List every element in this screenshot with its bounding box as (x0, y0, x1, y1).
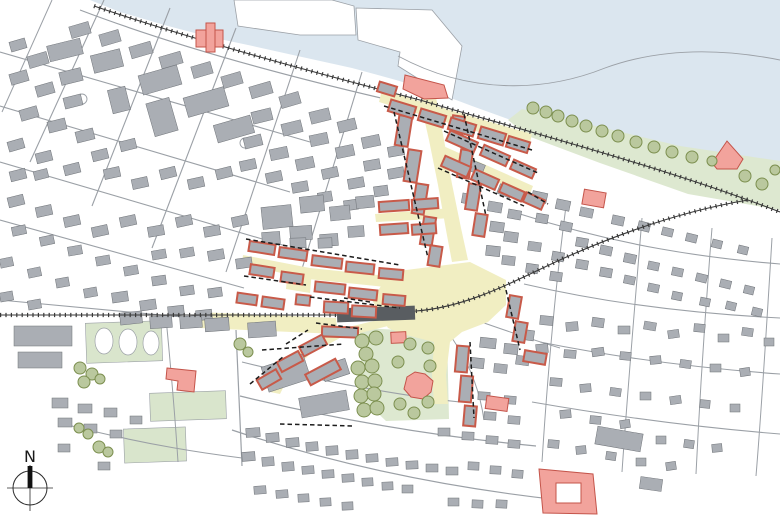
building (205, 317, 230, 332)
building (504, 343, 519, 354)
running-track (119, 329, 137, 355)
building (18, 352, 62, 368)
frontage-building (383, 294, 406, 306)
building (665, 461, 676, 470)
building (508, 440, 521, 449)
tree (666, 146, 678, 158)
building (623, 275, 635, 285)
frontage-building (324, 301, 349, 313)
tree (422, 342, 434, 354)
building (599, 245, 613, 256)
building (661, 227, 674, 237)
building (366, 454, 378, 463)
tree (648, 141, 660, 153)
building (560, 410, 572, 419)
frontage-building (352, 305, 377, 317)
building (242, 452, 256, 462)
frontage-building (455, 346, 469, 373)
building (502, 255, 516, 265)
building (679, 359, 691, 368)
building (0, 257, 14, 269)
building (150, 315, 173, 329)
north-needle (28, 466, 33, 488)
road (542, 206, 566, 462)
town-map-canvas: N (0, 0, 780, 516)
building (406, 461, 418, 469)
building (282, 462, 295, 472)
road (756, 238, 772, 476)
building (725, 301, 737, 311)
building (9, 70, 29, 86)
tree (580, 120, 592, 132)
frontage-building (480, 145, 510, 166)
building (737, 245, 749, 255)
building (9, 168, 27, 182)
building (550, 377, 563, 386)
building (591, 317, 604, 328)
building (699, 297, 710, 307)
building (387, 167, 404, 180)
building (564, 349, 577, 358)
building (671, 267, 683, 277)
frontage-building (315, 281, 346, 294)
building (751, 307, 763, 317)
building (487, 201, 503, 213)
building (342, 474, 354, 483)
building (249, 81, 273, 99)
building (47, 118, 67, 133)
north-label: N (24, 447, 36, 466)
tree (354, 389, 368, 403)
building (580, 384, 592, 393)
tree (365, 359, 379, 373)
building (318, 238, 332, 248)
building (643, 321, 656, 331)
tree (355, 334, 369, 348)
frontage-building (379, 200, 410, 212)
building (180, 315, 203, 329)
building (63, 214, 81, 227)
tree (103, 447, 113, 457)
building (489, 221, 504, 233)
landmark-courtyard (556, 483, 581, 503)
building (640, 392, 651, 400)
building (231, 214, 249, 227)
building (261, 204, 293, 229)
frontage-building (305, 359, 341, 386)
frontage-building (379, 268, 404, 280)
building (611, 215, 625, 226)
building (590, 416, 602, 425)
building (35, 82, 55, 98)
building (321, 166, 339, 179)
building (35, 204, 53, 217)
building (91, 224, 109, 237)
building (592, 347, 605, 357)
building (248, 321, 277, 338)
building (685, 233, 698, 243)
tree (74, 423, 84, 433)
building (599, 267, 612, 278)
building (719, 279, 732, 289)
building (764, 338, 774, 346)
building (486, 436, 498, 445)
building (694, 324, 706, 333)
building (75, 128, 95, 143)
building (540, 315, 554, 325)
building (656, 436, 666, 444)
building (710, 364, 721, 372)
building (362, 478, 373, 487)
building (730, 404, 740, 412)
building (251, 108, 273, 124)
tree (357, 403, 371, 417)
building (382, 482, 393, 490)
sports-field (150, 391, 227, 422)
tree (74, 362, 86, 374)
building (286, 438, 300, 448)
building (605, 451, 616, 460)
building (342, 502, 353, 510)
building (355, 195, 374, 209)
building (609, 387, 621, 396)
building (402, 485, 413, 493)
frontage-building (312, 255, 343, 269)
tree (95, 374, 105, 384)
frontage-building (296, 294, 311, 305)
building (507, 209, 521, 220)
building (11, 225, 27, 237)
building (58, 418, 72, 427)
building (363, 159, 380, 172)
building (695, 273, 708, 283)
frontage-building (512, 321, 527, 343)
building (298, 494, 309, 503)
frontage-building (395, 115, 413, 147)
tree (404, 338, 416, 350)
tree (686, 151, 698, 163)
frontage-building (377, 82, 397, 97)
building (279, 91, 302, 108)
building (27, 267, 42, 279)
tree (552, 110, 564, 122)
building (103, 166, 121, 179)
building (265, 170, 283, 183)
building (138, 65, 182, 95)
building (739, 367, 750, 376)
building (39, 235, 55, 247)
building (83, 287, 97, 298)
building (266, 433, 280, 443)
building (438, 428, 450, 436)
building (159, 166, 177, 180)
frontage-building (459, 376, 473, 403)
road (696, 228, 712, 474)
building (107, 86, 130, 114)
north-arrow: N (7, 447, 53, 511)
building (129, 41, 153, 59)
building (329, 205, 350, 221)
frontage-building (236, 293, 257, 306)
building (239, 158, 257, 171)
building (269, 146, 289, 161)
landmark-building (582, 189, 606, 208)
building (559, 221, 573, 232)
building (486, 245, 501, 256)
tree (422, 396, 434, 408)
building (58, 444, 70, 452)
tree (355, 375, 369, 389)
building (575, 259, 588, 270)
site-plan-map: N (0, 0, 780, 516)
building (55, 277, 69, 288)
building (147, 225, 164, 238)
tree (566, 115, 578, 127)
building (512, 470, 524, 479)
building (183, 87, 229, 118)
building (361, 134, 381, 149)
building (299, 390, 350, 418)
building (35, 150, 53, 164)
building (337, 118, 357, 133)
building (78, 404, 92, 413)
building (63, 162, 81, 176)
building (700, 400, 711, 409)
building (52, 398, 68, 408)
building (98, 462, 110, 470)
building (215, 166, 233, 180)
building (595, 426, 643, 452)
building (207, 249, 224, 262)
building (426, 464, 438, 472)
building (151, 275, 166, 286)
building (246, 428, 261, 438)
building (472, 500, 483, 508)
frontage-building (428, 245, 443, 267)
tree (78, 376, 90, 388)
building (99, 29, 122, 46)
building (131, 176, 149, 189)
building (322, 470, 334, 479)
landmark-building (206, 23, 215, 52)
building (63, 94, 83, 109)
building (179, 285, 194, 296)
building (639, 477, 662, 492)
tree (392, 356, 404, 368)
building (27, 299, 41, 310)
building (90, 49, 123, 74)
building (647, 283, 659, 293)
building (335, 144, 355, 159)
building (0, 291, 14, 302)
building (146, 97, 178, 136)
building (95, 255, 110, 266)
frontage-building (523, 350, 547, 365)
building (130, 416, 142, 424)
building (276, 490, 289, 499)
tree (351, 361, 365, 375)
building (139, 299, 156, 311)
building (386, 458, 398, 467)
building (373, 185, 388, 197)
tree (540, 106, 552, 118)
building (119, 138, 137, 152)
building (262, 457, 275, 467)
building (347, 177, 364, 190)
tree (596, 125, 608, 137)
building (619, 419, 630, 428)
frontage-building (346, 262, 375, 275)
tree (756, 178, 768, 190)
building (535, 213, 548, 224)
frontage-building (349, 288, 378, 301)
frontage-building (463, 406, 477, 427)
running-track (95, 328, 113, 354)
building (484, 412, 496, 421)
frontage-building (465, 183, 481, 211)
building (9, 38, 27, 52)
building (636, 458, 646, 466)
building (669, 395, 681, 404)
building (203, 225, 220, 238)
building (110, 430, 122, 438)
frontage-building (380, 223, 409, 235)
building (566, 321, 579, 331)
building (309, 108, 331, 124)
building (19, 106, 39, 122)
building (33, 168, 49, 180)
building (123, 265, 138, 276)
building (508, 416, 521, 425)
building (159, 51, 183, 69)
frontage-building (261, 297, 284, 310)
building (671, 291, 682, 301)
building (718, 334, 729, 342)
building (309, 132, 329, 147)
tree (408, 407, 420, 419)
landmark-building (391, 332, 407, 344)
building (346, 450, 358, 460)
building (462, 432, 474, 440)
tree (370, 401, 384, 415)
block-frontage-dashed (280, 424, 354, 426)
building (494, 363, 508, 373)
tree (367, 387, 381, 401)
building (67, 245, 82, 256)
building (348, 225, 365, 237)
building (623, 253, 637, 264)
building (549, 271, 562, 282)
building (119, 214, 137, 227)
building (712, 444, 723, 453)
tree (243, 347, 253, 357)
building (496, 500, 507, 509)
building (741, 327, 753, 336)
building (647, 261, 659, 271)
building (683, 439, 694, 448)
tree (424, 360, 436, 372)
building (299, 195, 325, 213)
road (532, 402, 780, 434)
building (27, 51, 50, 68)
frontage-building (472, 213, 487, 237)
building (295, 156, 315, 171)
tree (707, 156, 717, 166)
tree (630, 136, 642, 148)
building (91, 148, 109, 162)
tree (770, 165, 780, 175)
building (221, 71, 244, 88)
building (650, 356, 662, 365)
tree (739, 170, 751, 182)
building (480, 337, 497, 349)
frontage-building (322, 326, 358, 337)
building (191, 61, 214, 78)
building (576, 446, 587, 455)
building (326, 446, 338, 456)
building (254, 486, 267, 495)
building (151, 249, 166, 260)
building (711, 239, 723, 249)
landmark-building (485, 396, 509, 412)
building (525, 263, 538, 274)
building (743, 285, 755, 295)
building (618, 326, 630, 334)
tree (527, 102, 539, 114)
building (527, 241, 541, 252)
building (579, 207, 594, 219)
building (446, 467, 458, 475)
building (448, 498, 459, 506)
building (7, 194, 25, 208)
building (7, 138, 25, 152)
running-track (143, 331, 159, 355)
building (320, 498, 331, 507)
building (179, 247, 194, 258)
building (306, 442, 319, 452)
building (175, 214, 193, 227)
frontage-building (412, 223, 437, 235)
building (503, 231, 518, 243)
building (490, 466, 501, 475)
tree (612, 130, 624, 142)
building (620, 352, 632, 361)
building (119, 311, 142, 325)
building (291, 181, 308, 194)
tree (368, 374, 382, 388)
building (187, 176, 205, 189)
landmark-building (166, 368, 196, 392)
tree (369, 331, 383, 345)
building (281, 120, 303, 136)
building (243, 134, 263, 149)
building (667, 329, 679, 338)
building (104, 408, 117, 417)
building (555, 199, 571, 212)
building (14, 326, 72, 346)
building (302, 466, 315, 475)
building (548, 440, 560, 449)
tree (83, 429, 93, 439)
tree (394, 398, 406, 410)
building (207, 287, 222, 298)
building (468, 462, 479, 470)
building (111, 291, 128, 303)
frontage-building (278, 247, 307, 261)
